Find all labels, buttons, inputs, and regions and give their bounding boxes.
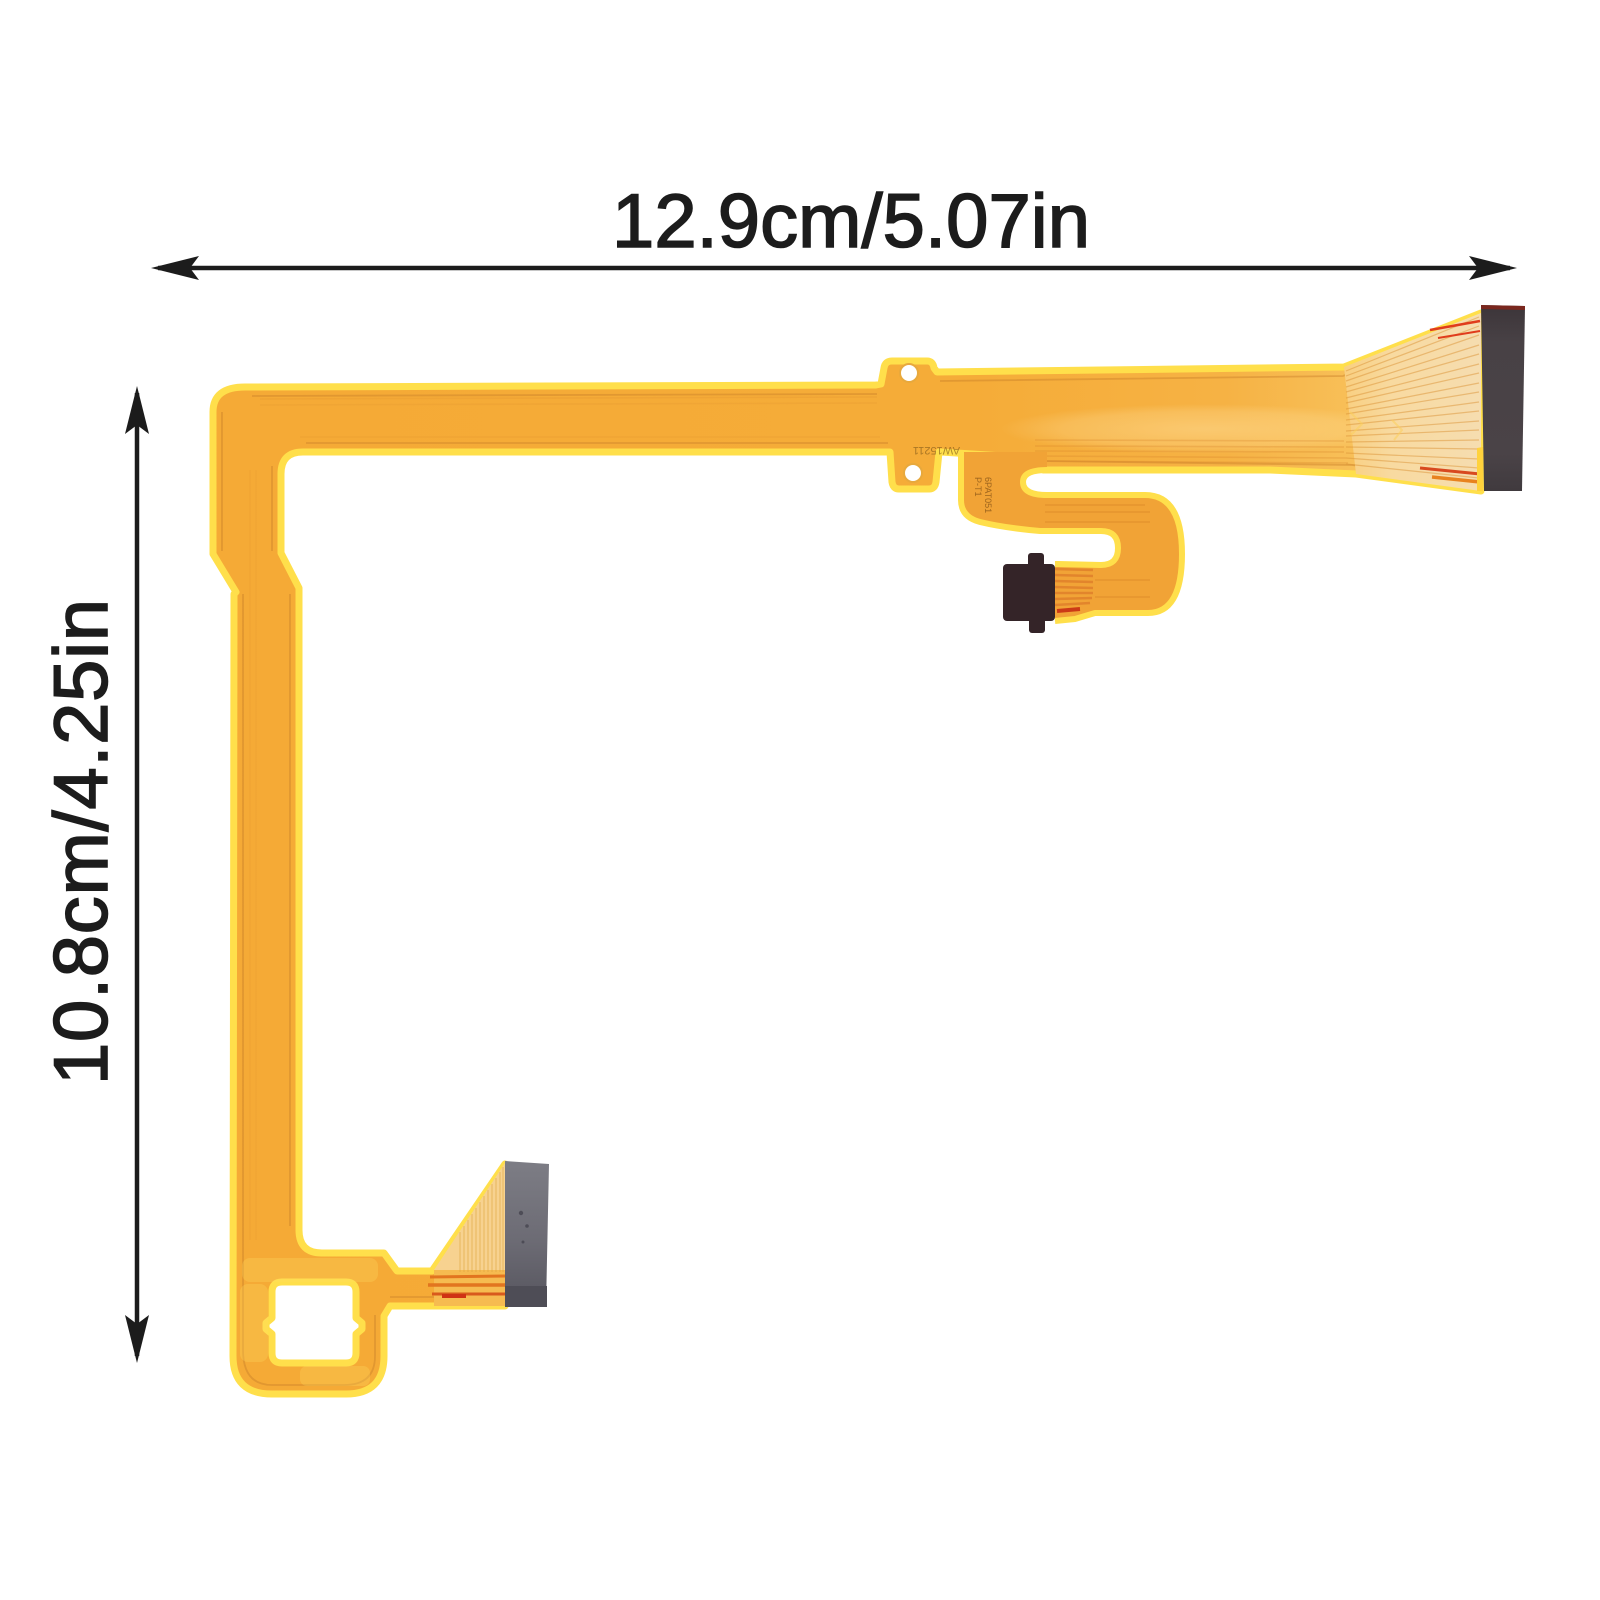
svg-text:6PAT051: 6PAT051 <box>983 477 993 513</box>
svg-text:AW15211: AW15211 <box>913 444 960 456</box>
svg-text:P-T1: P-T1 <box>973 477 983 497</box>
svg-text:12.9cm/5.07in: 12.9cm/5.07in <box>612 179 1090 264</box>
svg-text:10.8cm/4.25in: 10.8cm/4.25in <box>39 599 124 1085</box>
